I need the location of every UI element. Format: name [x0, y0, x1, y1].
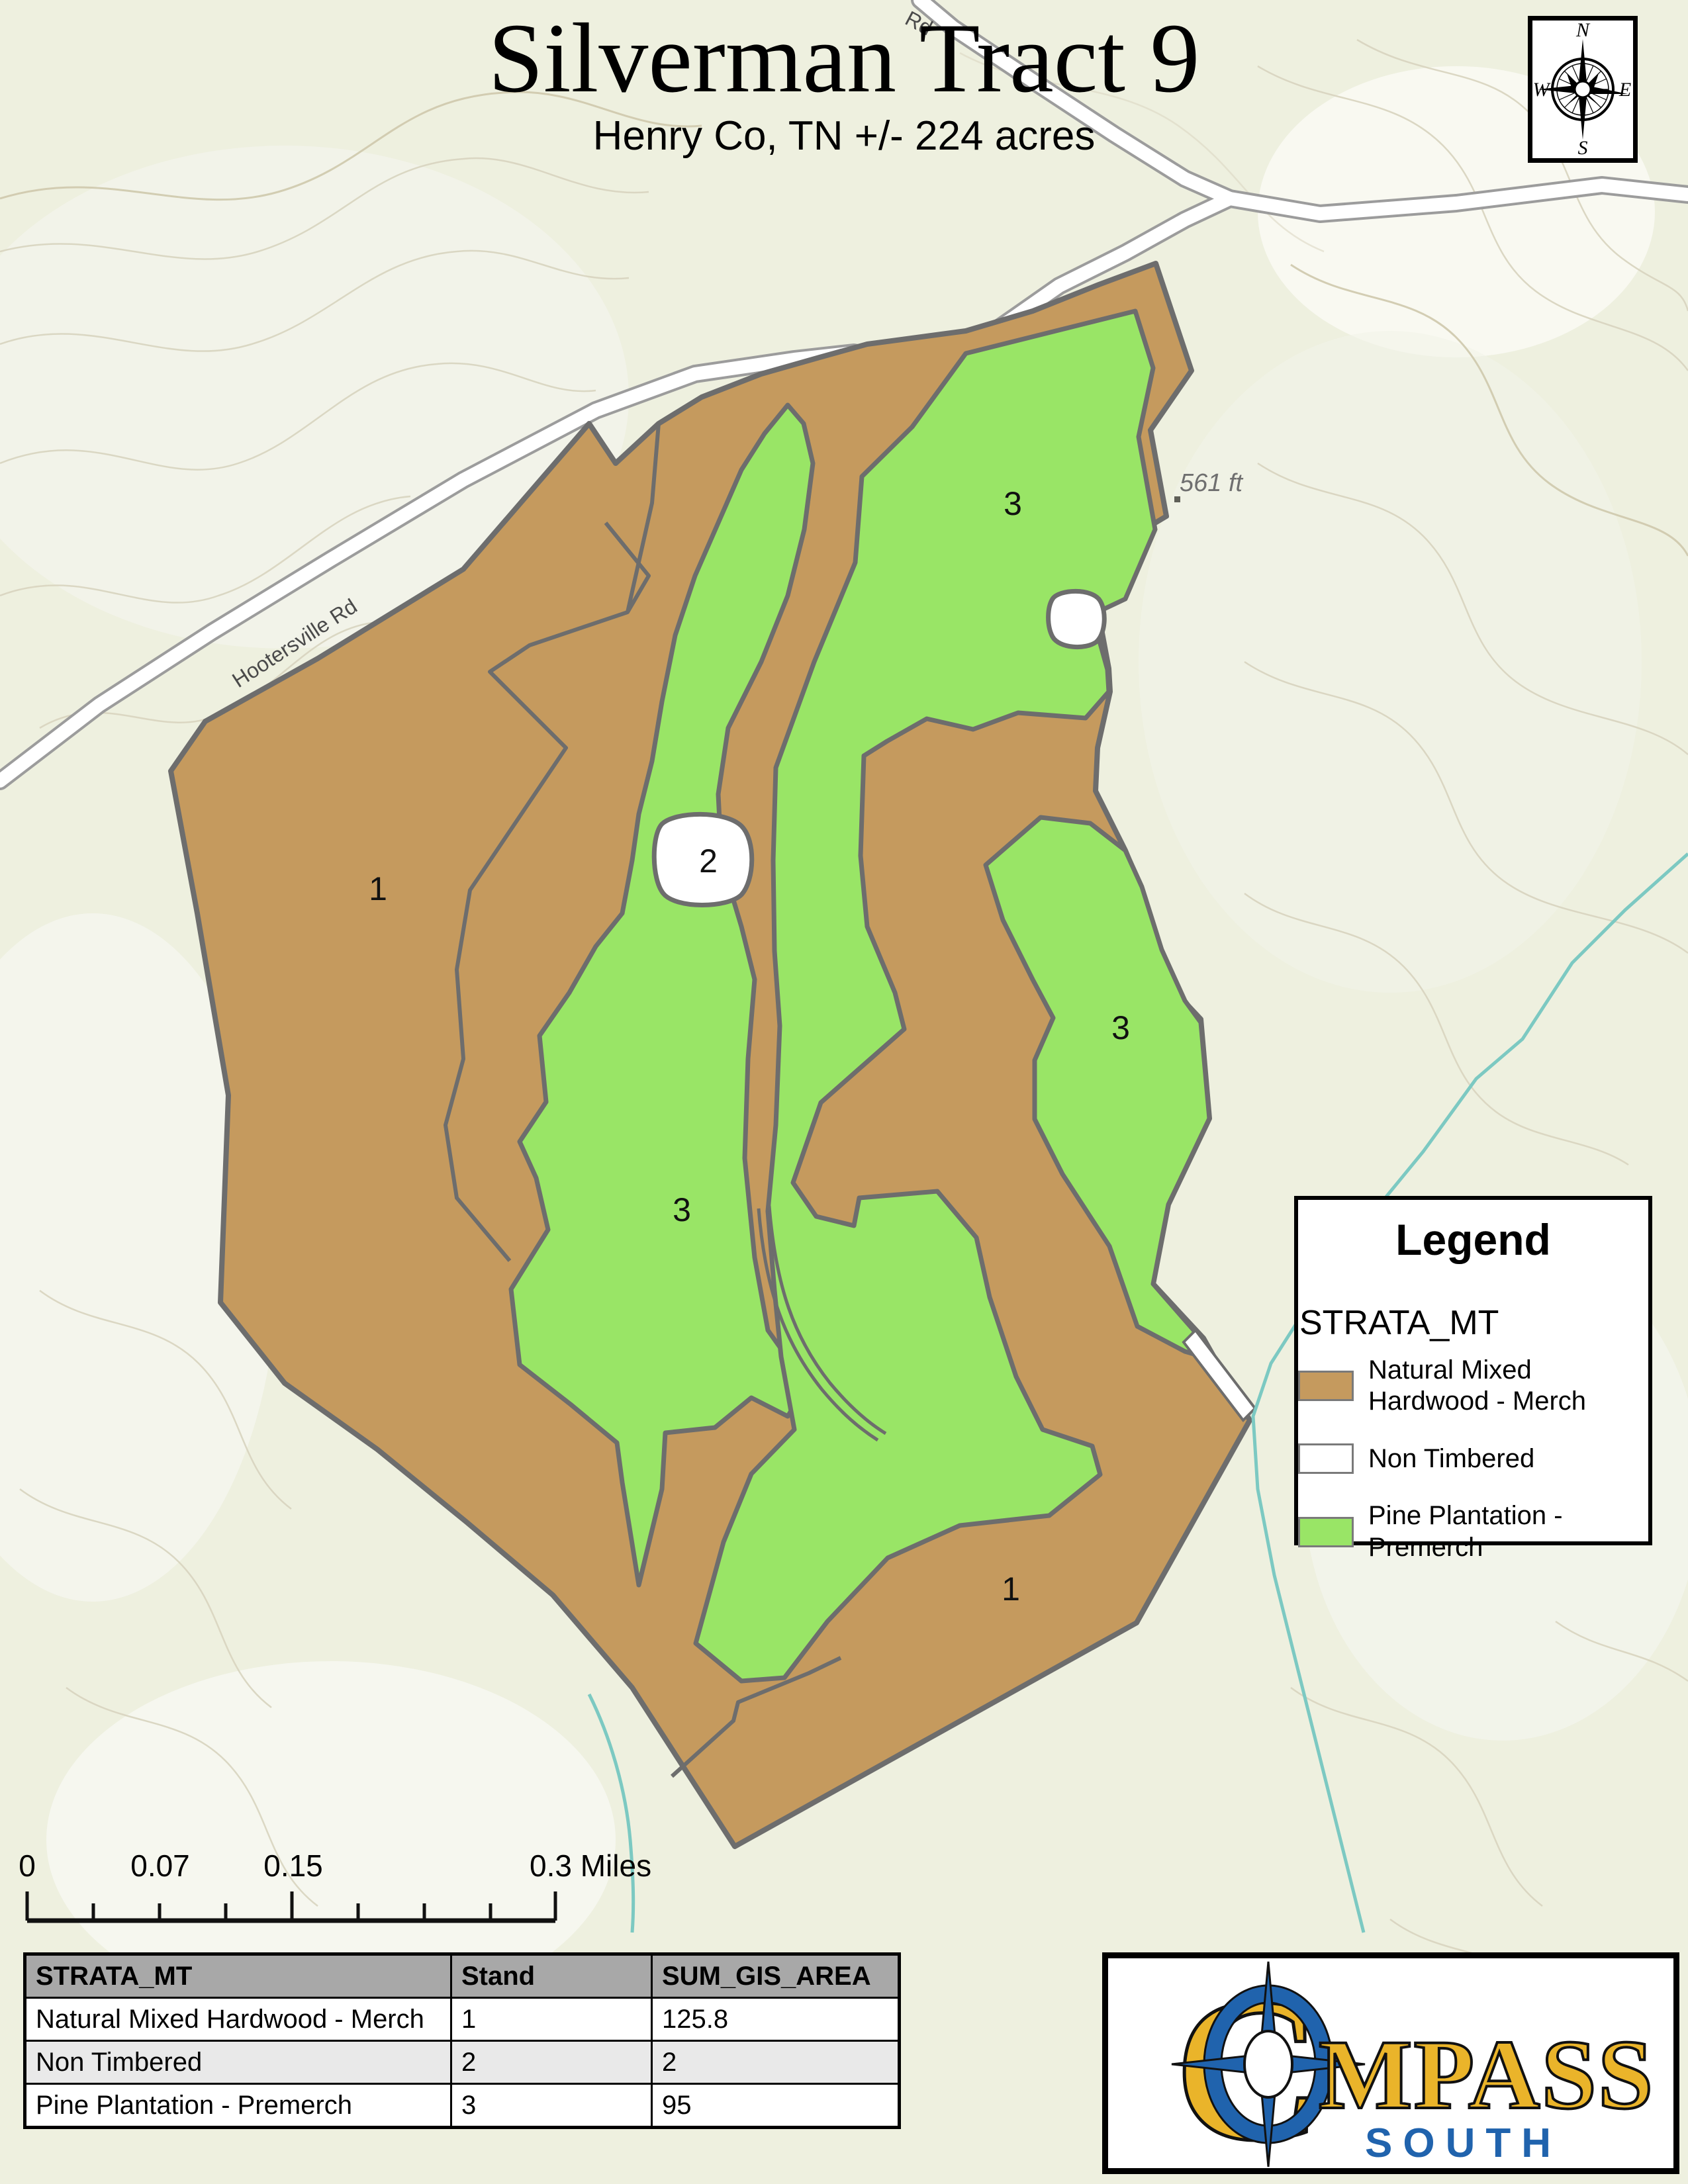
stand-label-1-south: 1 — [1002, 1570, 1020, 1608]
stand-label-1-west: 1 — [369, 870, 387, 907]
legend-swatch-pine — [1298, 1517, 1354, 1547]
strata-summary-table: STRATA_MT Stand SUM_GIS_AREA Natural Mix… — [23, 1952, 901, 2129]
legend-item-hardwood: Natural Mixed Hardwood - Merch — [1298, 1355, 1648, 1417]
logo-graphic: C MPASS SOUTH — [1108, 1958, 1673, 2168]
compass-e: E — [1618, 79, 1631, 101]
scale-bar-labels: 0 0.07 0.15 0.3 Miles — [0, 1848, 662, 1882]
legend-item-pine: Pine Plantation - Premerch — [1298, 1500, 1648, 1563]
table-row: Natural Mixed Hardwood - Merch 1 125.8 — [25, 1998, 900, 2041]
logo-word-mpass: MPASS — [1319, 2020, 1654, 2130]
compass-s: S — [1578, 137, 1588, 158]
cell-strata-3: Pine Plantation - Premerch — [25, 2084, 451, 2128]
stand-label-3-mid: 3 — [673, 1191, 691, 1228]
legend-label-hardwood-1: Natural Mixed — [1368, 1355, 1532, 1385]
legend-label-pine-1: Pine Plantation - — [1368, 1501, 1563, 1530]
col-header-strata: STRATA_MT — [25, 1954, 451, 1998]
map-page: 1 2 3 3 3 1 561 ft Hootersville Rd Rd Si… — [0, 0, 1688, 2184]
legend-label-hardwood-2: Hardwood - Merch — [1368, 1387, 1586, 1416]
compass-w: W — [1533, 79, 1552, 101]
col-header-stand: Stand — [451, 1954, 652, 1998]
col-header-area: SUM_GIS_AREA — [652, 1954, 900, 1998]
scale-bar-ticks — [0, 1885, 596, 1927]
non-timbered-small — [1049, 591, 1105, 647]
cell-strata-2: Non Timbered — [25, 2041, 451, 2084]
legend-title: Legend — [1298, 1214, 1648, 1265]
cell-stand-2: 2 — [451, 2041, 652, 2084]
table-row: Pine Plantation - Premerch 3 95 — [25, 2084, 900, 2128]
legend-box: Legend STRATA_MT Natural Mixed Hardwood … — [1294, 1196, 1652, 1545]
logo-word-south: SOUTH — [1365, 2120, 1562, 2166]
compass-rose-box: N E S W — [1528, 16, 1638, 163]
cell-stand-3: 3 — [451, 2084, 652, 2128]
cell-area-2: 2 — [652, 2041, 900, 2084]
scale-label-0: 0 — [19, 1848, 36, 1884]
stand-label-3-east: 3 — [1111, 1009, 1130, 1046]
legend-label-pine-2: Premerch — [1368, 1533, 1483, 1562]
stand-label-3-ne: 3 — [1004, 485, 1022, 522]
legend-layer-name: STRATA_MT — [1299, 1303, 1648, 1343]
legend-swatch-nontimbered — [1298, 1443, 1354, 1474]
scale-label-03mi: 0.3 Miles — [530, 1848, 651, 1884]
legend-swatch-hardwood — [1298, 1371, 1354, 1401]
scale-label-007: 0.07 — [130, 1848, 190, 1884]
cell-strata-1: Natural Mixed Hardwood - Merch — [25, 1998, 451, 2041]
scale-label-015: 0.15 — [263, 1848, 323, 1884]
table-header-row: STRATA_MT Stand SUM_GIS_AREA — [25, 1954, 900, 1998]
cell-stand-1: 1 — [451, 1998, 652, 2041]
legend-label-nontimbered: Non Timbered — [1368, 1443, 1534, 1475]
spot-elevation-marker — [1174, 496, 1180, 502]
cell-area-3: 95 — [652, 2084, 900, 2128]
stand-label-2: 2 — [699, 842, 718, 880]
compass-rose: N E S W — [1532, 21, 1633, 158]
table-row: Non Timbered 2 2 — [25, 2041, 900, 2084]
legend-item-nontimbered: Non Timbered — [1298, 1430, 1648, 1487]
compass-n: N — [1575, 21, 1591, 41]
svg-text:561 ft: 561 ft — [1180, 469, 1244, 497]
compass-south-logo: C MPASS SOUTH — [1102, 1952, 1679, 2174]
cell-area-1: 125.8 — [652, 1998, 900, 2041]
